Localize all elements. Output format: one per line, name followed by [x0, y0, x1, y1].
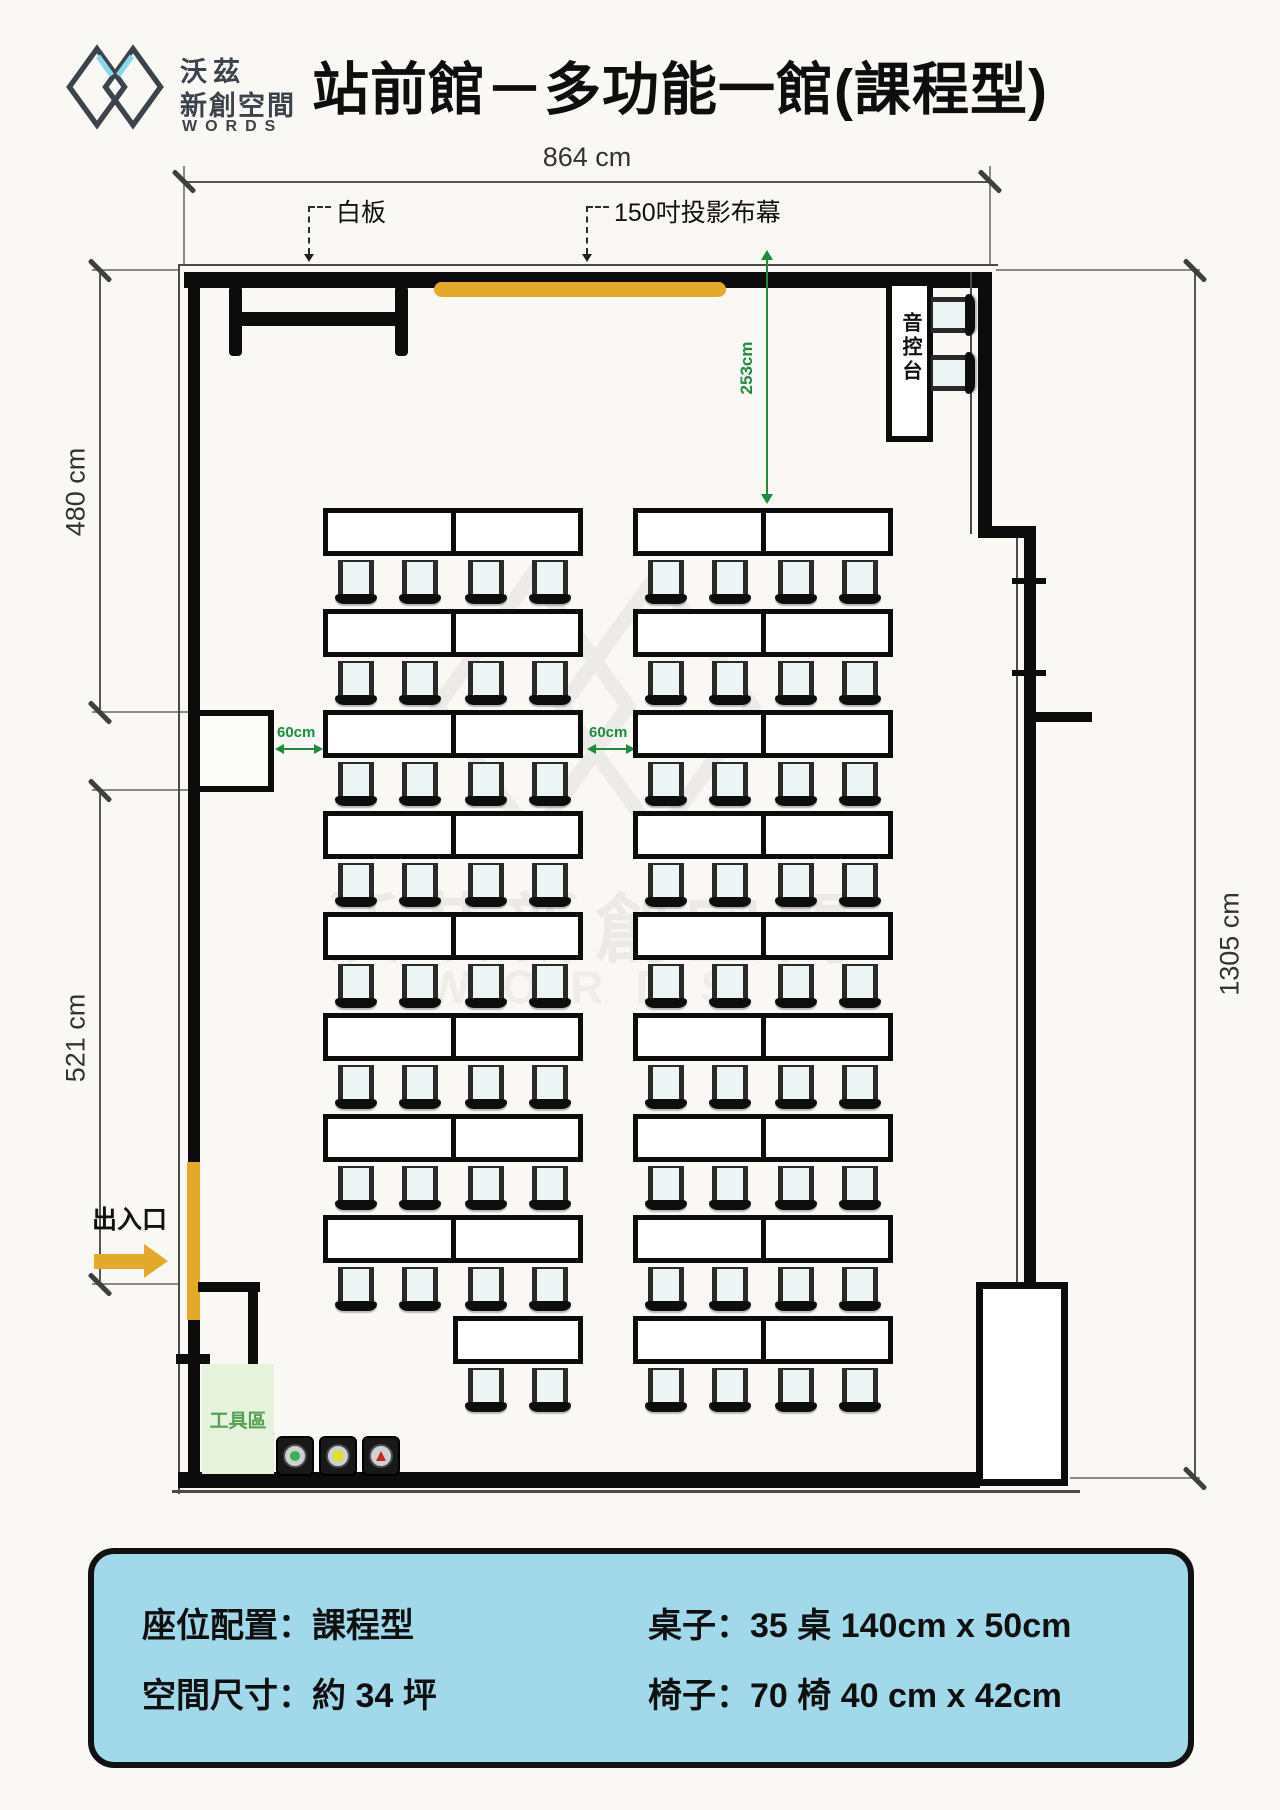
table-row: [633, 912, 893, 960]
chair: [399, 863, 441, 909]
table-row: [323, 1215, 583, 1263]
chair: [529, 1368, 571, 1414]
table-row: [323, 508, 583, 556]
chair: [839, 1368, 881, 1414]
chair: [645, 1065, 687, 1111]
table-row: [633, 1316, 893, 1364]
table-divider: [761, 609, 766, 657]
info-seating: 座位配置：課程型: [142, 1598, 414, 1647]
chair: [775, 661, 817, 707]
chair: [399, 661, 441, 707]
table-divider: [761, 1215, 766, 1263]
monitor-speaker: [362, 1436, 400, 1476]
info-tables: 桌子：35 桌 140cm x 50cm: [648, 1598, 1071, 1647]
chair: [335, 762, 377, 808]
chair: [399, 762, 441, 808]
table-row: [323, 912, 583, 960]
table-row: [323, 710, 583, 758]
chair: [839, 661, 881, 707]
table-divider: [451, 1215, 456, 1263]
chair: [775, 762, 817, 808]
chair: [709, 863, 751, 909]
chair: [465, 1267, 507, 1313]
chair: [775, 964, 817, 1010]
chair: [839, 762, 881, 808]
chair: [839, 560, 881, 606]
table-divider: [761, 1114, 766, 1162]
chair: [645, 1166, 687, 1212]
table-row: [453, 1316, 583, 1364]
table-row: [323, 609, 583, 657]
chair: [529, 863, 571, 909]
chair: [645, 661, 687, 707]
table-row: [633, 609, 893, 657]
table-row: [633, 710, 893, 758]
furniture-layer: [0, 0, 1280, 1810]
chair: [709, 1267, 751, 1313]
table-row: [323, 1114, 583, 1162]
table-divider: [451, 508, 456, 556]
chair: [399, 1166, 441, 1212]
chair: [335, 1267, 377, 1313]
chair: [399, 1267, 441, 1313]
table-divider: [451, 609, 456, 657]
chair: [465, 964, 507, 1010]
table-divider: [451, 1013, 456, 1061]
chair: [465, 1368, 507, 1414]
chair: [335, 1065, 377, 1111]
table-divider: [761, 710, 766, 758]
chair: [645, 863, 687, 909]
chair: [775, 560, 817, 606]
chair: [335, 863, 377, 909]
chair: [335, 661, 377, 707]
chair: [529, 1065, 571, 1111]
chair: [529, 964, 571, 1010]
poster-page: 沃茲 新創空間 WORDS 站前館－多功能一館(課程型) 沃茲新創空間 WORD…: [0, 0, 1280, 1810]
table-row: [633, 811, 893, 859]
info-box: [88, 1548, 1194, 1768]
chair: [839, 863, 881, 909]
table-divider: [761, 508, 766, 556]
table-row: [633, 1114, 893, 1162]
table-row: [633, 508, 893, 556]
chair: [839, 964, 881, 1010]
console-chair: [931, 352, 977, 394]
chair: [399, 1065, 441, 1111]
chair: [465, 661, 507, 707]
chair: [709, 661, 751, 707]
chair: [709, 762, 751, 808]
info-space: 空間尺寸：約 34 坪: [142, 1668, 437, 1717]
table-divider: [451, 710, 456, 758]
table-row: [323, 1013, 583, 1061]
table-row: [633, 1013, 893, 1061]
table-divider: [451, 811, 456, 859]
chair: [775, 863, 817, 909]
chair: [399, 560, 441, 606]
chair: [839, 1166, 881, 1212]
chair: [465, 762, 507, 808]
chair: [645, 560, 687, 606]
table-divider: [761, 811, 766, 859]
table-row: [633, 1215, 893, 1263]
table-divider: [761, 1316, 766, 1364]
chair: [465, 1166, 507, 1212]
chair: [465, 560, 507, 606]
info-chairs: 椅子：70 椅 40 cm x 42cm: [648, 1668, 1062, 1717]
chair: [335, 1166, 377, 1212]
chair: [529, 661, 571, 707]
table-row: [323, 811, 583, 859]
console-chair: [931, 294, 977, 336]
chair: [775, 1368, 817, 1414]
chair: [645, 1267, 687, 1313]
chair: [645, 1368, 687, 1414]
table-divider: [451, 912, 456, 960]
chair: [335, 964, 377, 1010]
chair: [839, 1065, 881, 1111]
chair: [709, 560, 751, 606]
chair: [709, 1065, 751, 1111]
chair: [529, 1267, 571, 1313]
chair: [335, 560, 377, 606]
chair: [465, 863, 507, 909]
table-divider: [451, 1114, 456, 1162]
chair: [529, 1166, 571, 1212]
chair: [709, 1166, 751, 1212]
chair: [645, 964, 687, 1010]
chair: [775, 1065, 817, 1111]
chair: [399, 964, 441, 1010]
table-divider: [761, 1013, 766, 1061]
chair: [645, 762, 687, 808]
chair: [465, 1065, 507, 1111]
chair: [775, 1267, 817, 1313]
chair: [529, 762, 571, 808]
chair: [709, 964, 751, 1010]
monitor-speaker: [276, 1436, 314, 1476]
chair: [839, 1267, 881, 1313]
monitor-speaker: [319, 1436, 357, 1476]
chair: [529, 560, 571, 606]
chair: [775, 1166, 817, 1212]
chair: [709, 1368, 751, 1414]
table-divider: [761, 912, 766, 960]
